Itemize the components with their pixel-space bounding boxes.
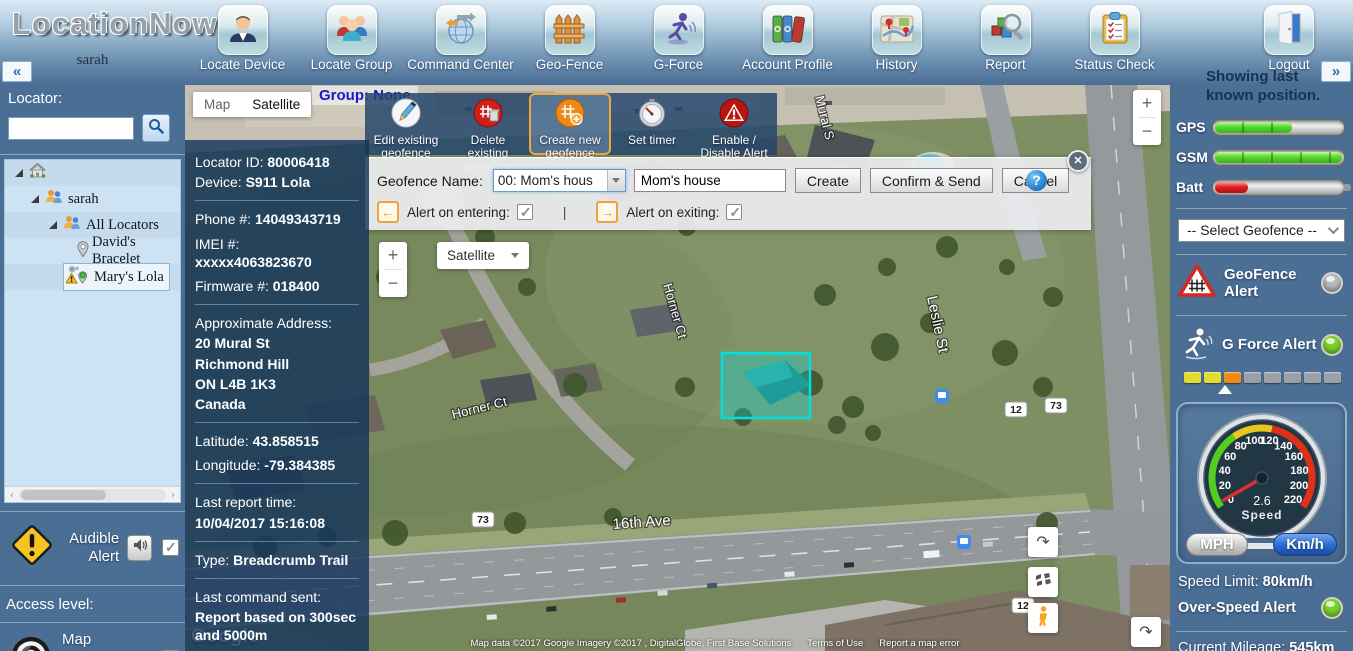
select-geofence-dropdown[interactable]: -- Select Geofence -- <box>1178 219 1345 242</box>
zoom-in-button[interactable]: + <box>1133 90 1161 117</box>
chevron-down-icon <box>607 170 625 191</box>
battery-bar <box>1212 179 1345 196</box>
alert-on-entering-label: Alert on entering: <box>407 205 510 220</box>
divider <box>0 511 185 512</box>
mph-button[interactable]: MPH <box>1186 533 1248 556</box>
chevron-down-icon <box>1328 223 1339 234</box>
meter-segment <box>1304 372 1321 383</box>
geofence-alert-led <box>1321 272 1343 294</box>
mileage-value: 545km <box>1289 640 1334 651</box>
address-line: ON L4B 1K3 <box>195 376 276 392</box>
over-speed-led <box>1321 597 1343 619</box>
audible-alert-checkbox[interactable] <box>162 539 179 556</box>
create-geofence-icon <box>555 115 585 132</box>
left-sidebar: « Locator: sarah All Locators <box>0 60 185 651</box>
gforce-meter-pointer <box>1218 385 1232 394</box>
locator-id-value: 80006418 <box>267 154 329 170</box>
longitude-value: -79.384385 <box>264 457 335 473</box>
map-type-satellite[interactable]: Satellite <box>241 92 311 117</box>
tilt-icon <box>1034 573 1052 592</box>
device-value: S911 Lola <box>246 174 311 190</box>
scroll-left-icon[interactable]: ‹ <box>5 487 19 502</box>
over-speed-alert-label: Over-Speed Alert <box>1178 600 1321 616</box>
last-report-value: 10/04/2017 15:16:08 <box>195 515 325 531</box>
exit-arrow-icon: → <box>596 201 618 223</box>
gsm-signal-row: GSM <box>1176 149 1345 166</box>
alert-toggle-icon <box>719 115 749 132</box>
gauge-tick: 220 <box>1283 494 1301 506</box>
group-icon <box>45 189 63 209</box>
tree-horizontal-scrollbar[interactable]: ‹ › <box>5 486 180 502</box>
nav-geo-fence[interactable]: Geo-Fence <box>515 1 624 72</box>
geofence-name-input[interactable] <box>634 169 786 192</box>
audible-alert-label: Audible Alert <box>64 530 119 565</box>
road-badge: 12 <box>1010 404 1022 416</box>
type-value: Breadcrumb Trail <box>233 552 348 568</box>
warning-pin-icon <box>66 265 92 289</box>
zoom-in-button[interactable]: + <box>379 242 407 269</box>
nav-status-check[interactable]: Status Check <box>1060 1 1169 72</box>
meter-segment <box>1204 372 1221 383</box>
help-icon[interactable]: ? <box>1026 170 1047 191</box>
separator: | <box>563 205 567 220</box>
divider <box>0 154 185 155</box>
locator-label: Locator: <box>8 90 185 107</box>
terms-of-use-link[interactable]: Terms of Use <box>807 638 863 649</box>
logout-icon <box>1272 11 1306 50</box>
tree-expand-icon[interactable] <box>15 169 23 177</box>
search-icon <box>148 118 164 139</box>
access-level-label: Access level: <box>6 596 185 613</box>
meter-segment <box>1324 372 1341 383</box>
nav-command-center[interactable]: Command Center <box>406 1 515 72</box>
gauge-tick: 40 <box>1218 465 1230 477</box>
nav-locate-device[interactable]: Locate Device <box>188 1 297 72</box>
expand-sidebar-button[interactable]: » <box>1321 61 1351 82</box>
zoom-out-button[interactable]: − <box>379 270 407 297</box>
locationnow-app: LocationNowTM sarah Locate Device Locate… <box>0 0 1353 651</box>
kmh-button[interactable]: Km/h <box>1273 533 1337 556</box>
meter-segment <box>1264 372 1281 383</box>
map-type-map[interactable]: Map <box>193 92 241 117</box>
pegman-button[interactable] <box>1028 603 1058 633</box>
mileage-line: Current Mileage: 545km <box>1178 640 1345 651</box>
create-geofence-button[interactable]: Create new geofence <box>529 93 611 155</box>
gforce-level-meter <box>1184 372 1353 383</box>
latitude-value: 43.858515 <box>253 433 319 449</box>
gsm-signal-bar <box>1212 149 1345 166</box>
last-command-value: Report based on 300sec and 5000m <box>195 609 356 643</box>
gauge-tick: 60 <box>1224 451 1236 463</box>
map-centered-row: Map centered on Locator <box>10 631 179 651</box>
rotate-map-button[interactable]: ↷ <box>1028 527 1058 557</box>
meter-segment <box>1184 372 1201 383</box>
geofence-toolbar: Edit existing geofence Delete existing g… <box>365 93 777 155</box>
map-centered-label: Map centered on Locator <box>62 631 152 651</box>
nav-account-profile[interactable]: Account Profile <box>733 1 842 72</box>
speed-label: Speed <box>1241 508 1282 522</box>
enter-arrow-icon: ← <box>377 201 399 223</box>
nav-g-force[interactable]: G-Force <box>624 1 733 72</box>
audible-alert-row: Audible Alert <box>8 521 179 574</box>
tree-item-marys-lola[interactable]: Mary's Lola <box>5 264 180 290</box>
nav-locate-group[interactable]: Locate Group <box>297 1 406 72</box>
firmware-value: 018400 <box>273 278 320 294</box>
gps-signal-row: GPS <box>1176 119 1345 136</box>
inner-map-type-dropdown[interactable]: Satellite <box>437 242 529 269</box>
alert-on-exiting-checkbox[interactable] <box>726 204 742 220</box>
locator-search-input[interactable] <box>8 117 134 140</box>
geofence-alert-label: GeoFence Alert <box>1224 266 1321 301</box>
meter-segment <box>1244 372 1261 383</box>
locator-tree: sarah All Locators David's Bracelet Mary… <box>4 159 181 503</box>
scroll-right-icon[interactable]: › <box>166 487 180 502</box>
locate-group-icon <box>334 12 370 49</box>
status-check-icon <box>1099 11 1131 50</box>
account-profile-icon <box>770 12 806 49</box>
speed-value: 2.6 <box>1253 494 1270 508</box>
address-line: Canada <box>195 396 246 412</box>
delete-geofence-button[interactable]: Delete existing geofence <box>447 93 529 155</box>
divider <box>0 585 185 586</box>
geofence-alert-icon <box>1178 264 1216 303</box>
geofence-name-label: Geofence Name: <box>377 173 483 189</box>
gauge-tick: 180 <box>1290 465 1308 477</box>
zoom-out-button[interactable]: − <box>1133 118 1161 145</box>
locator-search-button[interactable] <box>142 114 170 142</box>
tree-expand-icon[interactable] <box>49 221 57 229</box>
speed-limit-line: Speed Limit: 80km/h <box>1178 574 1345 590</box>
road-badge: 73 <box>1050 400 1062 412</box>
right-sidebar: » Showing last known position. GPS GSM B… <box>1170 60 1353 651</box>
command-center-icon <box>443 11 479 50</box>
gforce-alert-row: G Force Alert <box>1178 325 1343 366</box>
geo-fence-icon <box>553 11 587 50</box>
gforce-alert-led <box>1321 334 1343 356</box>
speaker-icon <box>132 537 148 558</box>
tree-item-sarah[interactable]: sarah <box>5 186 180 212</box>
speed-gauge-panel: 0 20 40 60 80 100 120 140 160 180 200 22… <box>1176 402 1347 564</box>
g-force-icon <box>662 11 696 50</box>
pegman-icon <box>1037 605 1050 632</box>
close-icon[interactable]: ✕ <box>1067 150 1089 172</box>
outer-map-zoom-control: + − <box>1133 90 1161 145</box>
map-pin-icon <box>77 241 89 262</box>
top-bar: LocationNowTM sarah Locate Device Locate… <box>0 0 1353 85</box>
create-button[interactable]: Create <box>795 168 861 193</box>
divider <box>1176 254 1347 255</box>
gauge-tick: 20 <box>1218 480 1230 492</box>
report-icon <box>988 11 1024 50</box>
over-speed-alert-row: Over-Speed Alert <box>1178 597 1343 619</box>
edit-geofence-button[interactable]: Edit existing geofence <box>365 93 447 155</box>
history-icon <box>879 12 915 49</box>
inner-map-zoom-control: + − <box>379 242 407 297</box>
scrollbar-track[interactable] <box>19 489 166 501</box>
gps-signal-bar <box>1212 119 1345 136</box>
timer-icon <box>637 115 667 132</box>
geofence-name-select[interactable]: 00: Mom's hous <box>493 169 626 192</box>
address-line: 20 Mural St <box>195 335 270 351</box>
meter-segment <box>1284 372 1301 383</box>
tilt-view-button[interactable] <box>1028 567 1058 597</box>
nav-report[interactable]: Report <box>951 1 1060 72</box>
battery-row: Batt <box>1176 179 1345 196</box>
tree-item-davids-bracelet[interactable]: David's Bracelet <box>5 238 180 264</box>
map-attribution: Map data ©2017 Google Imagery ©2017 , Di… <box>415 638 1015 649</box>
geofence-dialog: Geofence Name: 00: Mom's hous Create Con… <box>365 157 1091 230</box>
road-badge: 73 <box>477 514 489 526</box>
nav-history[interactable]: History <box>842 1 951 72</box>
rotate-map-button[interactable]: ↷ <box>1131 617 1161 647</box>
gauge-tick: 200 <box>1289 480 1307 492</box>
map-area: 73 12 73 12 Mural S Horner Ct Horner Ct … <box>185 85 1170 651</box>
address-line: Richmond Hill <box>195 356 289 372</box>
meter-segment <box>1224 372 1241 383</box>
divider <box>1176 631 1347 632</box>
alert-on-entering-checkbox[interactable] <box>517 204 533 220</box>
tree-expand-icon[interactable] <box>31 195 39 203</box>
phone-value: 14049343719 <box>255 211 341 227</box>
map-type-toggle: Map Satellite <box>193 92 311 117</box>
geofence-rectangle[interactable] <box>722 353 810 418</box>
edit-pencil-icon <box>391 115 421 132</box>
speedometer: 0 20 40 60 80 100 120 140 160 180 200 22… <box>1182 406 1342 538</box>
gforce-alert-icon <box>1178 325 1214 366</box>
collapse-sidebar-button[interactable]: « <box>2 61 32 82</box>
divider <box>1176 315 1347 316</box>
chevron-down-icon <box>511 253 519 258</box>
confirm-send-button[interactable]: Confirm & Send <box>870 168 993 193</box>
locator-info-panel: Locator ID: 80006418 Device: S911 Lola P… <box>185 140 369 651</box>
locate-device-icon <box>226 11 260 50</box>
scrollbar-thumb[interactable] <box>21 490 106 500</box>
imei-value: xxxxx4063823670 <box>195 254 312 270</box>
gforce-alert-label: G Force Alert <box>1222 336 1321 353</box>
speed-limit-value: 80km/h <box>1263 574 1313 590</box>
enable-disable-alert-button[interactable]: Enable / Disable Alert <box>693 93 775 155</box>
tree-item-root[interactable] <box>5 160 180 186</box>
gauge-tick: 160 <box>1284 451 1302 463</box>
alert-on-exiting-label: Alert on exiting: <box>626 205 719 220</box>
target-icon <box>10 635 52 651</box>
attribution-text: Map data ©2017 Google Imagery ©2017 , Di… <box>470 638 791 649</box>
audible-alert-sound-button[interactable] <box>127 535 152 561</box>
report-error-link[interactable]: Report a map error <box>879 638 959 649</box>
group-icon <box>63 215 81 235</box>
geofence-alert-row: GeoFence Alert <box>1178 264 1343 303</box>
delete-geofence-icon <box>473 115 503 132</box>
home-icon <box>29 163 46 183</box>
divider <box>0 622 185 623</box>
divider <box>1176 208 1347 209</box>
warning-diamond-icon <box>8 521 56 574</box>
set-timer-button[interactable]: Set timer <box>611 93 693 155</box>
